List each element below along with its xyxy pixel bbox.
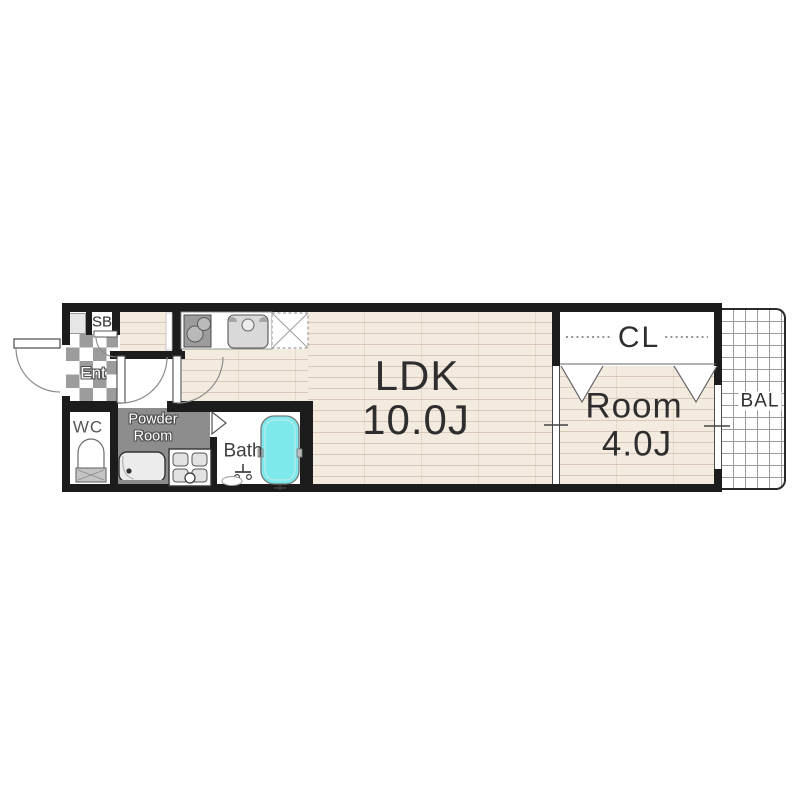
shower-faucet-icon [222,464,251,486]
toilet-icon [76,439,106,482]
wall-ldk-bath-top [167,401,313,412]
closet-label: CL [613,323,665,353]
wall-bath-right [300,412,313,484]
powder-room-label: Powder Room [128,412,177,447]
powder-room-label-line2: Room [134,429,173,445]
wall-right-upper [714,303,722,385]
bedroom-label: Room [585,389,682,424]
wc-label: WC [73,419,103,436]
refrigerator-space-icon [272,313,308,348]
floor-plan-canvas: LDK 10.0J Room 4.0J CL BAL WC Bath Ent S… [0,0,800,800]
front-door-swing-icon [14,339,60,392]
entrance-label: Ent [80,365,106,382]
hall-upper-floor [120,312,167,351]
wall-wc-top [62,401,118,412]
wall-sb-right [112,312,120,335]
bedroom-size-label: 4.0J [602,427,672,462]
ldk-size-label: 10.0J [362,399,470,441]
wall-left-upper [62,303,70,345]
ldk-floor-kitchen [182,349,308,401]
balcony-label: BAL [739,392,782,411]
bath-label: Bath [223,442,262,461]
wall-right-lower [714,469,722,492]
kitchen-sink-icon [228,315,268,348]
wall-partition-ldk-room [552,312,560,366]
wall-wc-right [110,412,118,487]
kitchen-counter-icon [181,312,272,349]
stove-icon [184,315,211,347]
hall-door-swing-icon [117,356,167,403]
wall-bottom [62,484,722,492]
shoebox-label: SB [92,315,112,330]
bath-folding-door-icon [212,412,226,434]
sliding-window-balcony [714,385,722,469]
ldk-room-label: LDK [375,355,460,397]
bathtub-icon [258,416,302,490]
wall-powder-bath [210,437,217,487]
wall-top [62,303,722,312]
powder-room-label-line1: Powder [128,412,177,428]
wall-hall-ldk [172,312,182,359]
sliding-door-ldk-room [552,366,560,484]
